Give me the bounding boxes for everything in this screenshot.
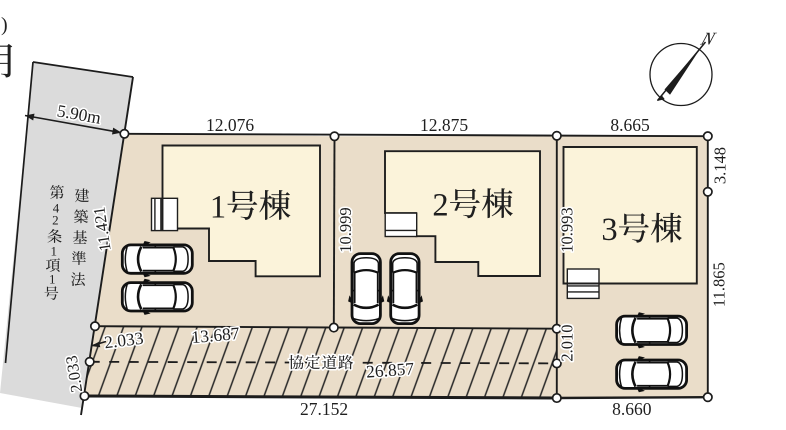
svg-text:10.999: 10.999: [336, 207, 355, 252]
svg-text:2.010: 2.010: [557, 324, 576, 361]
svg-text:1: 1: [49, 271, 56, 286]
svg-text:12.875: 12.875: [420, 115, 468, 135]
svg-text:): ): [1, 14, 8, 36]
svg-text:1: 1: [51, 243, 58, 258]
svg-text:8.660: 8.660: [612, 399, 652, 419]
svg-text:12.076: 12.076: [206, 115, 254, 135]
svg-text:8.665: 8.665: [610, 115, 650, 135]
svg-text:26.857: 26.857: [365, 358, 415, 381]
svg-text:3.148: 3.148: [711, 147, 730, 184]
svg-text:11.865: 11.865: [709, 262, 728, 307]
svg-text:N: N: [697, 29, 719, 49]
svg-text:3: 3: [601, 212, 617, 248]
svg-text:10.993: 10.993: [557, 207, 576, 252]
svg-text:1: 1: [210, 189, 226, 225]
svg-text:2: 2: [52, 212, 59, 227]
svg-text:13.687: 13.687: [191, 323, 241, 347]
svg-text:2: 2: [432, 188, 448, 224]
svg-text:27.152: 27.152: [300, 399, 348, 419]
